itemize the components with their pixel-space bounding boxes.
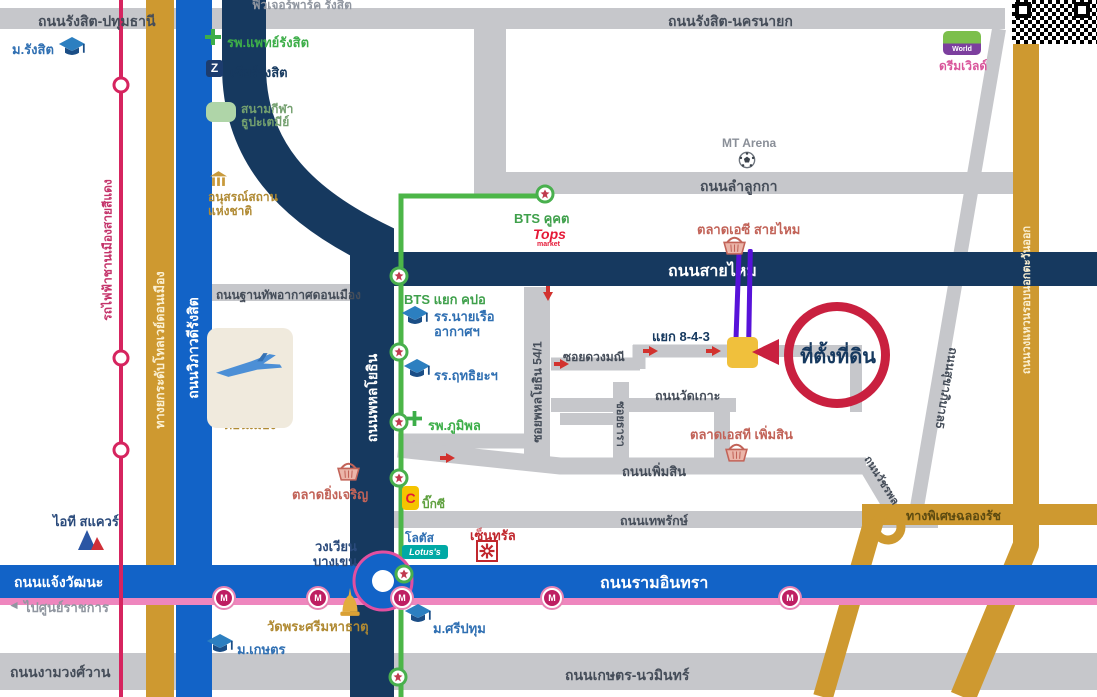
road-label-theparak: ถนนเทพรักษ์ — [620, 511, 688, 531]
poi-sripatum: ม.ศรีปทุม — [433, 618, 486, 639]
bigc-logo: C — [402, 486, 419, 510]
road-label-rangsit-pathum: ถนนรังสิต-ปทุมธานี — [38, 11, 156, 33]
road-label-watkoh: ถนนวัดเกาะ — [655, 386, 720, 406]
site-label: ที่ตั้งที่ดิน — [800, 340, 876, 372]
poi-bigc: บิ๊กซี — [422, 495, 445, 514]
graduation-cap-icon — [206, 633, 234, 656]
central-logo-icon — [476, 540, 498, 562]
gov-center-arrow: ◄ — [8, 598, 20, 612]
zeer-logo: Z — [206, 60, 223, 77]
bts-yaek-kpo-station-icon — [390, 267, 409, 286]
poi-rp-rangsit: รพ.แพทย์รังสิต — [227, 32, 309, 53]
tops-logo-subtext: market — [537, 241, 566, 248]
junction-label-843: แยก 8-4-3 — [652, 326, 710, 347]
temple-stupa-icon — [339, 588, 361, 618]
hospital-cross-icon — [205, 29, 221, 45]
direction-arrow-right — [712, 346, 721, 356]
road-label-thanthap: ถนนฐานทัพอากาศดอนเมือง — [216, 286, 361, 305]
lotus-logo: Lotus's — [402, 545, 448, 559]
road-label-phahonyothin: ถนนพหลโยธิน — [362, 354, 384, 443]
bts-station-icon — [390, 413, 409, 432]
poi-m-rangsit: ม.รังสิต — [12, 39, 54, 60]
graduation-cap-icon — [404, 603, 432, 626]
airplane-icon — [216, 352, 282, 379]
mrt-station-icon: M — [214, 588, 234, 608]
road-label-ramindra: ถนนรามอินทรา — [600, 571, 708, 596]
map-canvas: ที่ตั้งที่ดิน ฟิวเจอร์พาร์ค รังสิต ถนนรั… — [0, 0, 1097, 697]
road-label-soi54: ซอยพหลโยธิน 54/1 — [529, 341, 548, 442]
road-label-duangmanee: ซอยดวงมณี — [563, 348, 625, 367]
stadium-icon — [206, 102, 236, 122]
it-square-logo-icon — [78, 530, 104, 550]
direction-arrow-right — [560, 359, 569, 369]
soccer-ball-icon — [738, 151, 756, 169]
poi-wat-phrasri: วัดพระศรีมหาธาตุ — [267, 616, 369, 637]
road-label-chaengwattana: ถนนแจ้งวัฒนะ — [14, 572, 103, 594]
poi-zeer-rangsit: เซียร์รังสิต — [230, 62, 288, 83]
poi-navy-academy-line2: อากาศฯ — [434, 321, 480, 342]
market-basket-icon — [722, 234, 747, 255]
poi-bhumibol-hospital: รพ.ภูมิพล — [428, 415, 481, 436]
road-label-phoemsin: ถนนเพิ่มสิน — [622, 461, 686, 482]
road-label-lamlukka: ถนนลำลูกกา — [700, 176, 777, 198]
road-label-tollway: ทางยกระดับโทลเวย์ดอนเมือง — [150, 271, 170, 428]
bangkhen-roundabout-center — [372, 570, 394, 592]
line-label-red-rail: รถไฟฟ้าชานเมืองสายสีแดง — [99, 179, 118, 320]
road-connector-vertical — [474, 27, 506, 179]
bts-station-icon — [395, 565, 414, 584]
poi-mt-arena: MT Arena — [722, 136, 776, 150]
hospital-cross-icon — [407, 411, 422, 426]
road-label-rangsit-nakhonnayok: ถนนรังสิต-นครนายก — [668, 11, 793, 33]
poi-future-park: ฟิวเจอร์พาร์ค รังสิต — [252, 0, 352, 15]
poi-memorial-line2: แห่งชาติ — [208, 202, 252, 221]
mrt-station-icon: M — [308, 588, 328, 608]
site-callout-tail — [752, 339, 779, 365]
dream-world-logo: World — [943, 31, 981, 55]
direction-arrow-right — [649, 346, 658, 356]
graduation-cap-icon — [401, 305, 429, 328]
poi-gov-center: ไปศูนย์ราชการ — [24, 597, 109, 618]
bts-khukhot-station-icon — [536, 185, 555, 204]
bts-station-icon — [389, 668, 408, 687]
road-label-kaset-nawamin: ถนนเกษตร-นวมินทร์ — [565, 665, 689, 687]
road-label-saimai: ถนนสายไหม — [668, 259, 757, 284]
graduation-cap-icon — [403, 358, 431, 381]
line-red-rail — [119, 0, 123, 697]
tops-logo-text: Tops — [533, 226, 566, 242]
poi-stadium-line2: ธูปะเตมีย์ — [241, 113, 289, 132]
road-label-soithara: ซอยธารา — [612, 401, 630, 447]
road-label-vibhavadi: ถนนวิภาวดีรังสิต — [183, 297, 205, 399]
market-basket-icon — [724, 441, 749, 462]
tops-market-logo: Tops market — [533, 227, 566, 248]
direction-arrow-right — [446, 453, 455, 463]
qr-code — [1012, 0, 1097, 44]
road-label-outer-ring: ถนนวงแหวนรอบนอกตะวันออก — [1017, 226, 1035, 374]
market-basket-icon — [336, 460, 361, 481]
poi-kaset: ม.เกษตร — [237, 639, 286, 660]
poi-market-yingcharoen: ตลาดยิ่งเจริญ — [292, 484, 368, 505]
poi-market-ac: ตลาดเอซี สายไหม — [697, 219, 800, 240]
poi-rittiya-school: รร.ฤทธิยะฯ — [434, 365, 498, 386]
poi-dream-world: ดรีมเวิลด์ — [939, 57, 987, 76]
poi-it-square: ไอที สแควร์ — [53, 511, 119, 532]
graduation-cap-icon — [58, 36, 86, 59]
road-label-chalongrat: ทางพิเศษฉลองรัช — [906, 506, 1001, 526]
mrt-station-icon: M — [780, 588, 800, 608]
road-label-ngamwongwan: ถนนงามวงศ์วาน — [10, 662, 110, 684]
mrt-station-icon: M — [542, 588, 562, 608]
memorial-monument-icon — [210, 171, 227, 186]
poi-roundabout-line2: บางเขน — [313, 551, 357, 572]
direction-arrow-down — [543, 292, 553, 301]
bts-station-icon — [390, 469, 409, 488]
